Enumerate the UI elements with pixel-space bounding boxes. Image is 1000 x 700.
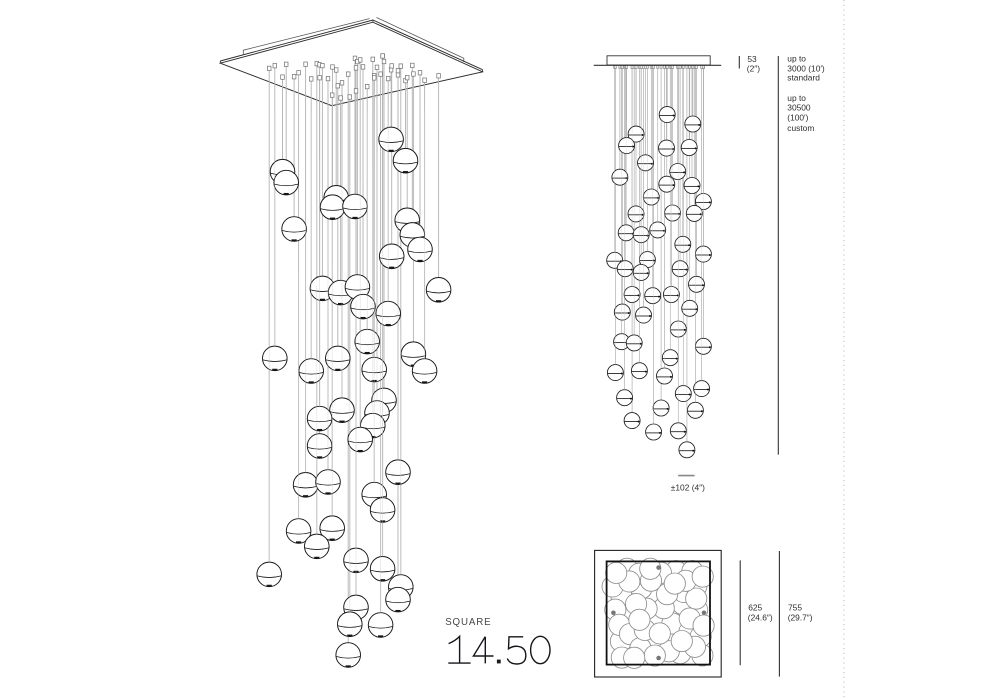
svg-text:SQUARE: SQUARE	[445, 617, 491, 628]
svg-text:standard: standard	[787, 72, 820, 82]
svg-text:(2″): (2″)	[747, 63, 760, 73]
svg-text:30500: 30500	[787, 102, 811, 112]
svg-text:custom: custom	[787, 123, 814, 133]
svg-text:up to: up to	[787, 54, 806, 64]
svg-text:(29.7″): (29.7″)	[788, 612, 813, 622]
svg-text:(100′): (100′)	[787, 113, 808, 123]
svg-text:755: 755	[788, 603, 802, 613]
svg-text:±102 (4″): ±102 (4″)	[671, 483, 705, 493]
svg-text:(24.6″): (24.6″)	[748, 612, 773, 622]
svg-text:625: 625	[748, 603, 762, 613]
